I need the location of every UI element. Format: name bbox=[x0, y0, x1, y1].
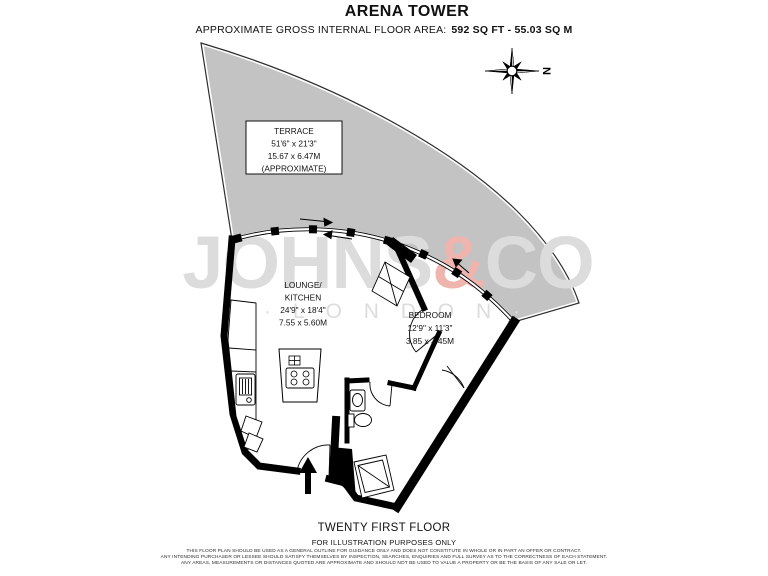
bedroom-dims-metric: 3.85 x 3.45M bbox=[406, 336, 454, 346]
compass-icon: N bbox=[485, 48, 552, 94]
bedroom-dims-imperial: 12'9" x 11'3" bbox=[408, 323, 453, 333]
compass-north-label: N bbox=[540, 67, 552, 75]
terrace-dims-metric: 15.67 x 6.47M bbox=[268, 151, 321, 161]
floor-name-label: TWENTY FIRST FLOOR bbox=[0, 522, 768, 534]
bedroom-name: BEDROOM bbox=[409, 310, 452, 320]
kitchen-island bbox=[279, 349, 321, 402]
toilet-icon bbox=[355, 414, 372, 427]
disclaimer-line-3: ANY AREAS, MEASUREMENTS OR DISTANCES QUO… bbox=[0, 561, 768, 567]
floorplan-drawing: JOHNS&CO · L O N D O N · TERRACE 51'6" x… bbox=[0, 0, 768, 576]
lounge-dims-imperial: 24'9" x 18'4" bbox=[280, 305, 326, 315]
floorplan-page: ARENA TOWER APPROXIMATE GROSS INTERNAL F… bbox=[0, 0, 768, 576]
disclaimer-block: THIS FLOOR PLAN SHOULD BE USED AS A GENE… bbox=[0, 549, 768, 567]
terrace-name: TERRACE bbox=[274, 126, 314, 136]
illustration-note: FOR ILLUSTRATION PURPOSES ONLY bbox=[0, 538, 768, 547]
terrace-dims-imperial: 51'6" x 21'3" bbox=[271, 139, 317, 149]
entry-arrow bbox=[299, 457, 317, 494]
terrace-label: TERRACE 51'6" x 21'3" 15.67 x 6.47M (APP… bbox=[246, 121, 342, 174]
lounge-name-2: KITCHEN bbox=[285, 293, 321, 303]
wall-block bbox=[331, 447, 356, 498]
lounge-name-1: LOUNGE/ bbox=[284, 280, 322, 290]
bathroom-fixtures bbox=[348, 390, 394, 498]
toilet-tank-icon bbox=[348, 414, 354, 427]
lounge-dims-metric: 7.55 x 5.60M bbox=[279, 318, 327, 328]
terrace-note: (APPROXIMATE) bbox=[262, 164, 327, 174]
kitchen-counter bbox=[228, 300, 263, 452]
watermark-brand-2: CO bbox=[485, 221, 594, 304]
